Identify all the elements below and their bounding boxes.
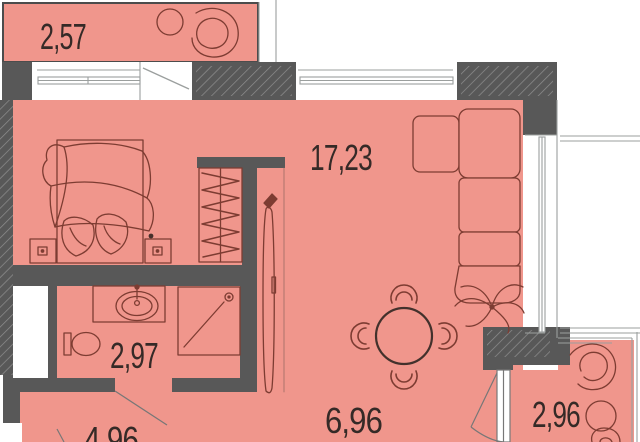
wall-left-exterior	[0, 100, 13, 375]
nightstand-lamp	[149, 234, 154, 239]
wall-wardrobe-side	[242, 168, 257, 266]
label-balcony-top: 2,57	[40, 16, 86, 57]
shower-drain-dot	[228, 296, 230, 298]
wall-pier-left	[2, 62, 32, 100]
wall-bathroom-bottom-left	[13, 378, 115, 392]
exterior-gap-bottom-left	[0, 423, 22, 442]
wall-bedroom-stub	[197, 157, 285, 168]
wall-mass-bottom-right-hatch	[487, 330, 550, 357]
sink-faucet-base	[135, 285, 139, 289]
wall-pier-corner-hatch	[461, 66, 553, 96]
wall-bathroom-left	[48, 286, 57, 378]
wall-pier-mid-hatch	[196, 66, 292, 96]
label-living-room: 17,23	[310, 137, 372, 178]
label-hallway: 4,96	[84, 419, 138, 442]
floor-plan-drawing: 2,57 17,23 2,97 4,96 6,96 2,96	[0, 0, 640, 442]
shaft-niche	[13, 286, 48, 378]
nightstand-left-knob	[41, 250, 43, 252]
sofa-seat-middle	[459, 178, 520, 232]
sofa-armrest-left	[413, 116, 459, 172]
sofa-seat-lower	[459, 232, 520, 266]
wall-bathroom-bottom-right	[172, 378, 257, 392]
nightstand-right-knob	[156, 250, 158, 252]
label-balcony-right: 2,96	[532, 394, 580, 435]
floor-plan: 2,57 17,23 2,97 4,96 6,96 2,96	[0, 0, 640, 442]
wall-bathroom-top	[13, 265, 257, 286]
label-bathroom: 2,97	[110, 335, 158, 376]
sofa-corner-seat	[459, 109, 520, 178]
label-kitchen: 6,96	[325, 400, 382, 441]
wall-bathroom-right	[240, 286, 257, 392]
wall-corner-tail	[523, 100, 557, 135]
